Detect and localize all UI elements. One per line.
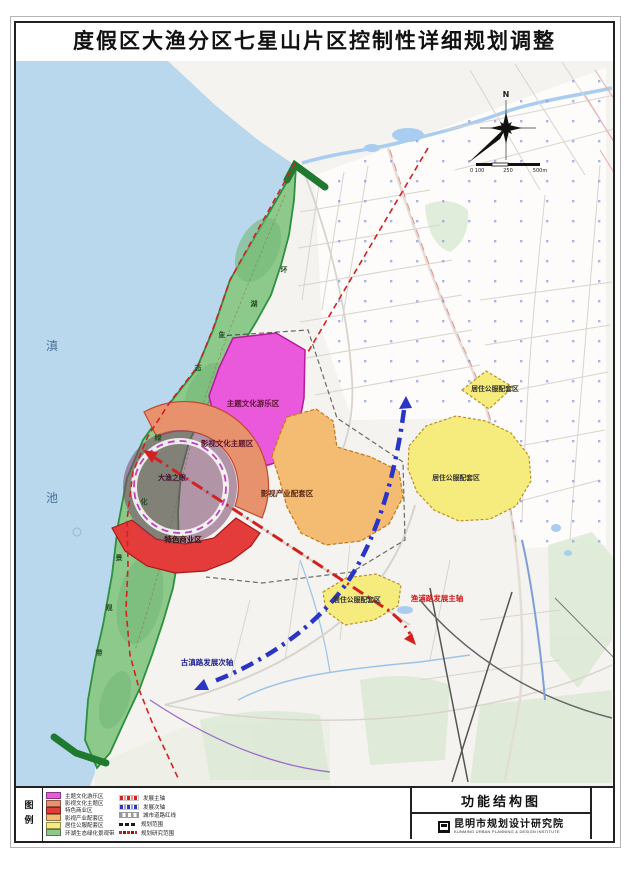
label-residential-2: 居住公服配套区 (432, 473, 480, 482)
svg-text:250: 250 (503, 168, 513, 174)
label-special-business: 特色商业区 (164, 534, 202, 544)
legend-swatch (46, 829, 61, 836)
svg-text:湖: 湖 (251, 299, 258, 308)
legend-symbol-study-scope (119, 831, 137, 834)
legend-item: 城市道路红线 (119, 811, 176, 820)
svg-text:绿: 绿 (155, 433, 163, 442)
map-area: N 0 100 250 500m 滇 池 环 湖 生 态 绿 化 景 (16, 61, 613, 786)
svg-text:环: 环 (281, 266, 288, 274)
page-title: 度假区大渔分区七星山片区控制性详细规划调整 (16, 23, 613, 61)
svg-text:500m: 500m (533, 168, 548, 174)
svg-text:观: 观 (106, 603, 113, 612)
scale-bar: 0 100 250 500m (470, 163, 547, 174)
label-axis-main: 渔浦路发展主轴 (411, 593, 464, 603)
legend-zone-items: 主题文化游乐区 影视文化主题区 特色商业区 影视产业配套区 居住公服配套区 环湖… (46, 792, 115, 836)
svg-text:化: 化 (141, 497, 148, 506)
title-block: 功能结构图 昆明市规划设计研究院 KUNMING URBAN PLANNING … (410, 786, 613, 839)
map-drawing: N 0 100 250 500m 滇 池 环 湖 生 态 绿 化 景 (16, 61, 613, 786)
svg-text:生: 生 (219, 330, 226, 339)
legend-item: 发展主轴 (119, 794, 176, 803)
compass-n-label: N (503, 90, 510, 99)
lake-label-char2: 池 (46, 491, 58, 505)
legend-swatch (46, 792, 61, 799)
institute-logo (438, 821, 450, 833)
legend-symbol-road-redline (119, 812, 139, 818)
institute-row: 昆明市规划设计研究院 KUNMING URBAN PLANNING & DESI… (412, 814, 590, 839)
plan-sheet: 度假区大渔分区七星山片区控制性详细规划调整 (0, 0, 640, 870)
label-film-culture: 影视文化主题区 (201, 438, 254, 448)
svg-text:0 100: 0 100 (470, 168, 484, 174)
legend-item: 规划研究范围 (119, 828, 176, 837)
svg-text:景: 景 (115, 553, 123, 562)
title-block-divider (590, 788, 592, 839)
legend-swatch (46, 800, 61, 807)
legend-header: 图例 (16, 788, 43, 841)
lake-label-char1: 滇 (46, 339, 58, 353)
drawing-title: 功能结构图 (412, 788, 590, 814)
legend-swatch (46, 822, 61, 829)
legend-line-items: 发展主轴 发展次轴 城市道路红线 规划范围 规划研究范围 (119, 794, 176, 837)
label-theme-park: 主题文化游乐区 (227, 398, 280, 408)
label-axis-secondary: 古滇路发展次轴 (181, 657, 234, 667)
legend-symbol-main-axis (119, 795, 139, 801)
legend-item: 规划范围 (119, 820, 176, 829)
legend-item: 发展次轴 (119, 803, 176, 812)
label-film-industry: 影视产业配套区 (261, 488, 314, 498)
svg-text:带: 带 (96, 648, 103, 657)
legend-swatch (46, 814, 61, 821)
legend-symbol-secondary-axis (119, 804, 139, 810)
svg-text:态: 态 (195, 363, 202, 372)
label-residential-1: 居住公服配套区 (471, 384, 519, 393)
institute-name-en: KUNMING URBAN PLANNING & DESIGN INSTITUT… (454, 830, 564, 834)
label-residential-3: 居住公服配套区 (333, 595, 381, 604)
legend-swatch (46, 807, 61, 814)
legend-symbol-planning-scope (119, 823, 137, 826)
legend-item: 环湖生态绿化景观带 (46, 829, 115, 836)
label-dayu-eye: 大渔之眼 (158, 473, 186, 482)
